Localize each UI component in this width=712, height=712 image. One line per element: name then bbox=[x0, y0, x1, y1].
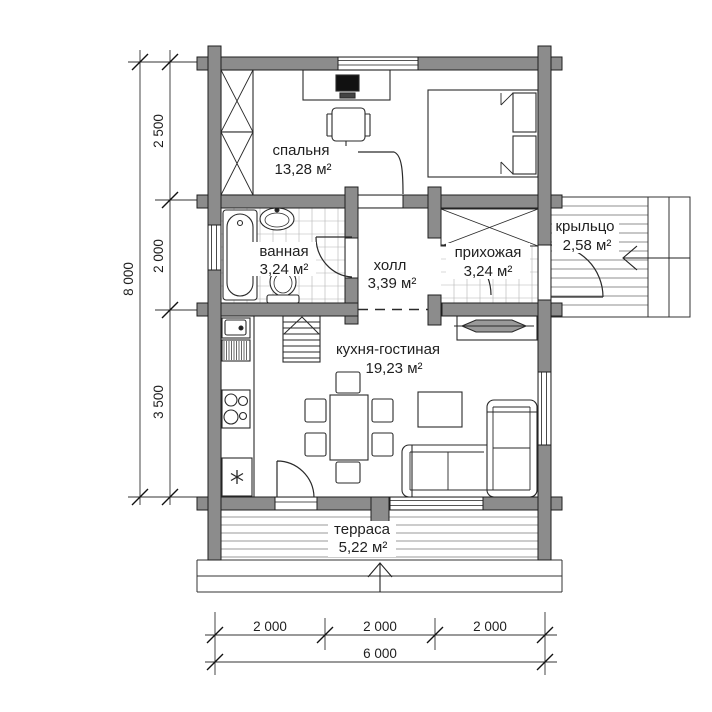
dim-bottom-3: 2 000 bbox=[473, 619, 507, 634]
kitchen-sink bbox=[222, 318, 250, 338]
opening-entryway bbox=[429, 238, 441, 295]
bathtub bbox=[223, 210, 257, 300]
room-label-porch: крыльцо bbox=[555, 218, 614, 235]
dimension-lines-left bbox=[128, 50, 208, 505]
keyboard bbox=[340, 93, 355, 98]
door-arc-bedroom bbox=[358, 152, 403, 194]
terrace-post-middle bbox=[371, 497, 389, 523]
dim-left-2500: 2 500 bbox=[151, 114, 166, 148]
desk bbox=[303, 70, 390, 100]
pillow bbox=[513, 136, 536, 174]
chair bbox=[372, 399, 393, 422]
opening-entrance-door bbox=[539, 245, 551, 300]
opening-bedroom-door bbox=[358, 196, 403, 208]
tv-cabinet bbox=[454, 316, 537, 340]
entry-arrow-terrace bbox=[368, 563, 392, 592]
opening-terrace-door bbox=[275, 498, 317, 510]
chair bbox=[372, 433, 393, 456]
room-area-terrace: 5,22 м² bbox=[339, 539, 388, 556]
stove bbox=[222, 390, 250, 428]
room-label-bedroom: спальня bbox=[273, 142, 330, 159]
bedroom-furniture bbox=[221, 70, 538, 195]
dining-set bbox=[305, 372, 393, 483]
room-area-kitchen-living: 19,23 м² bbox=[365, 360, 422, 377]
dim-bottom-2: 2 000 bbox=[363, 619, 397, 634]
wash-basin bbox=[260, 208, 294, 230]
wall-right bbox=[538, 46, 551, 560]
wall-left bbox=[208, 46, 221, 560]
room-label-entryway: прихожая bbox=[455, 244, 522, 261]
wardrobe-bedroom bbox=[221, 70, 253, 195]
room-area-bedroom: 13,28 м² bbox=[274, 161, 331, 178]
window-top-bedroom bbox=[338, 58, 418, 70]
dining-table bbox=[330, 395, 368, 460]
door-arc-terrace bbox=[277, 461, 314, 497]
chair bbox=[336, 462, 360, 483]
window-left-bathroom bbox=[209, 225, 221, 270]
monitor bbox=[336, 75, 359, 91]
room-label-terrace: терраса bbox=[334, 521, 391, 538]
chair bbox=[305, 433, 326, 456]
window-bottom-living bbox=[390, 498, 483, 510]
room-area-entryway: 3,24 м² bbox=[464, 263, 513, 280]
chair bbox=[305, 399, 326, 422]
room-label-hall: холл bbox=[374, 257, 407, 274]
drainer-hatch bbox=[222, 340, 250, 361]
opening-bathroom-door bbox=[346, 238, 358, 278]
dim-left-3500: 3 500 bbox=[151, 385, 166, 419]
office-chair bbox=[327, 108, 370, 146]
dim-bottom-total: 6 000 bbox=[363, 646, 397, 661]
floor-plan-page: 2 500 2 000 3 500 8 000 2 000 2 000 2 00… bbox=[0, 0, 712, 712]
floor-plan-svg: 2 500 2 000 3 500 8 000 2 000 2 000 2 00… bbox=[0, 0, 712, 712]
room-label-bathroom: ванная bbox=[259, 243, 308, 260]
fridge bbox=[222, 458, 252, 496]
dim-left-2000: 2 000 bbox=[151, 239, 166, 273]
dim-bottom-1: 2 000 bbox=[253, 619, 287, 634]
pillow bbox=[513, 93, 536, 132]
room-label-kitchen-living: кухня-гостиная bbox=[336, 341, 440, 358]
window-right-kitchen bbox=[539, 372, 551, 445]
room-area-porch: 2,58 м² bbox=[563, 237, 612, 254]
dim-left-total: 8 000 bbox=[121, 262, 136, 296]
room-area-hall: 3,39 м² bbox=[368, 275, 417, 292]
wall-bathroom-stub bbox=[345, 316, 358, 324]
coffee-table bbox=[418, 392, 462, 427]
wardrobe-entryway bbox=[441, 209, 538, 246]
stairs bbox=[283, 316, 320, 362]
porch bbox=[551, 197, 690, 317]
chair bbox=[336, 372, 360, 393]
double-bed bbox=[428, 90, 538, 177]
wall-entryway-upper bbox=[428, 187, 441, 238]
room-area-bathroom: 3,24 м² bbox=[260, 261, 309, 278]
wall-entryway-lower bbox=[428, 295, 441, 325]
